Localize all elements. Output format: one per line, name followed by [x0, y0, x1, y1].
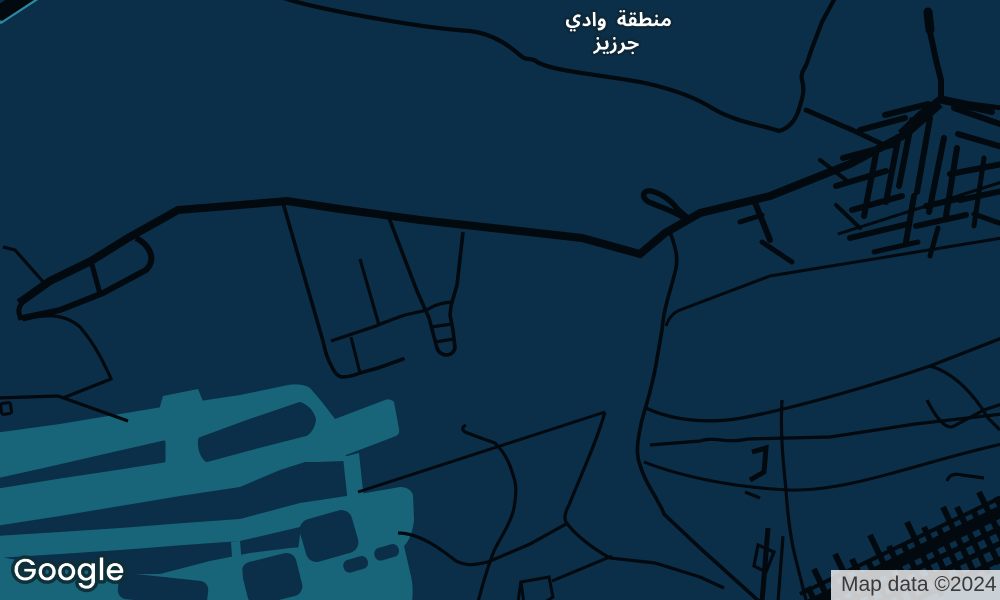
svg-text:Map data ©2024: Map data ©2024	[841, 573, 997, 596]
